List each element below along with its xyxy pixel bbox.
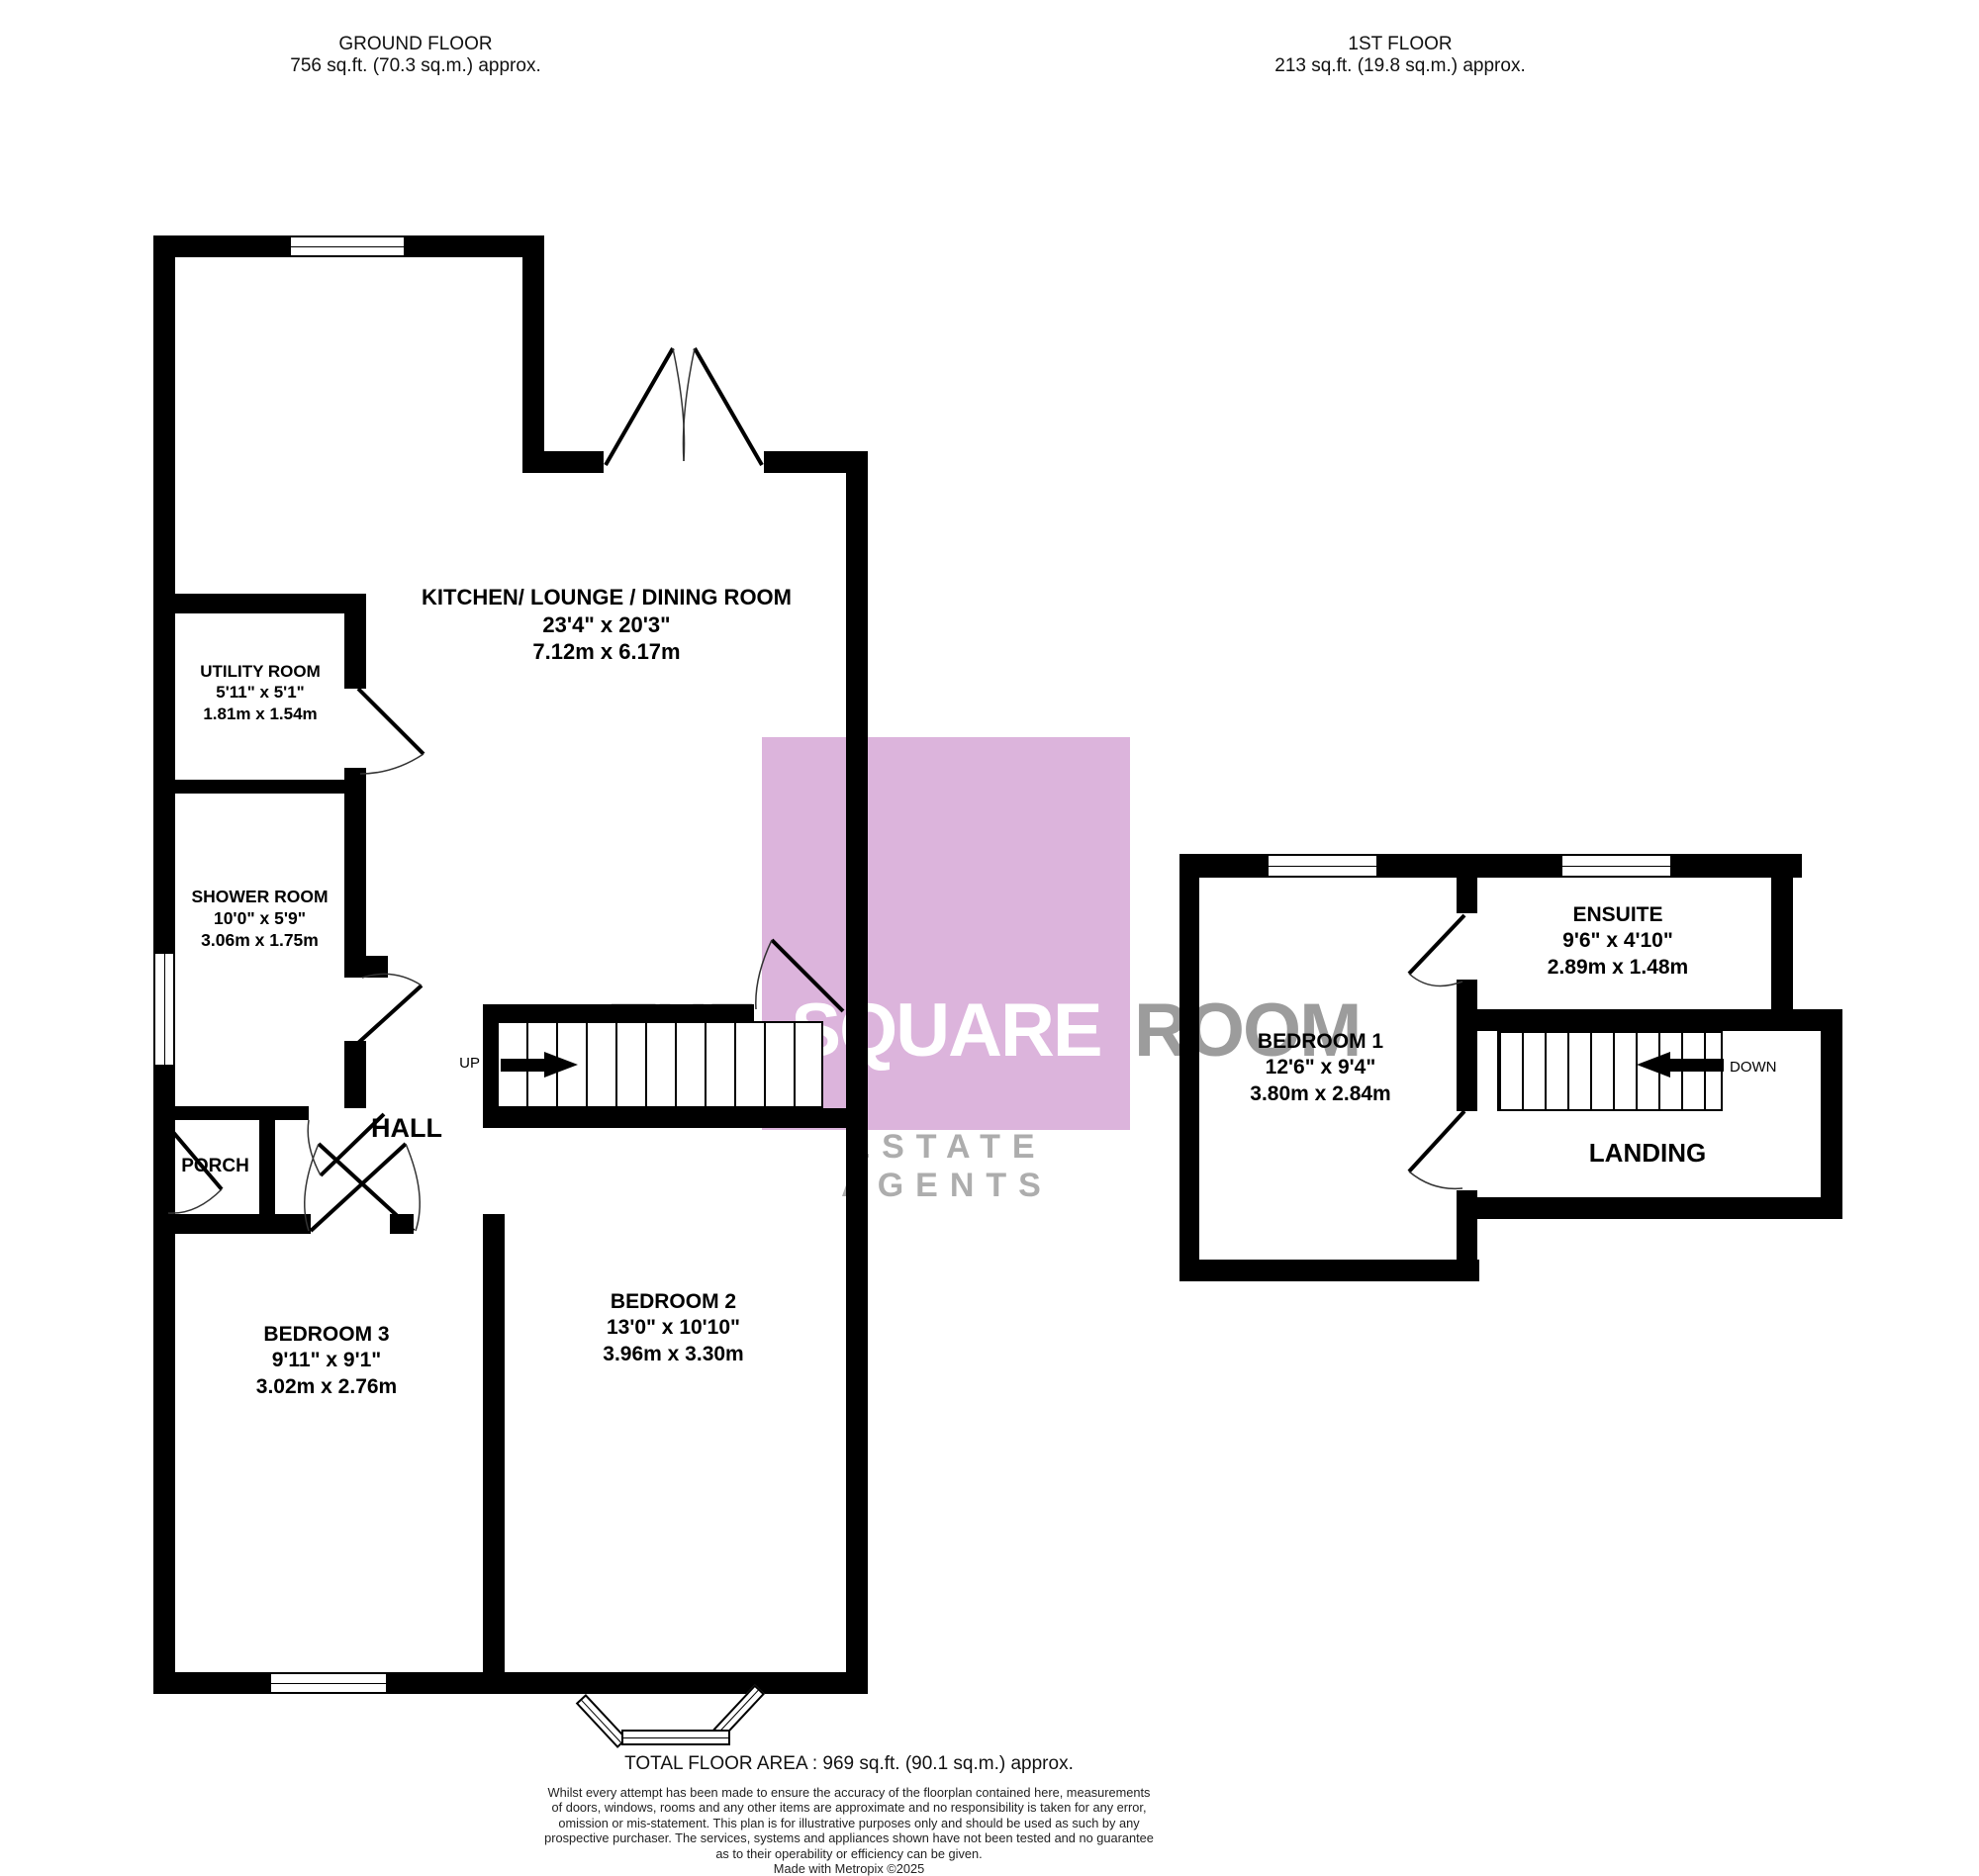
room-name: UTILITY ROOM bbox=[155, 661, 365, 682]
door-leaf bbox=[358, 985, 422, 1043]
room-name: KITCHEN/ LOUNGE / DINING ROOM bbox=[409, 584, 804, 611]
wall bbox=[483, 1214, 505, 1672]
room-label-bed3: BEDROOM 3 9'11" x 9'1" 3.02m x 2.76m bbox=[178, 1322, 475, 1400]
disclaimer-line: Whilst every attempt has been made to en… bbox=[404, 1785, 1294, 1800]
bay-window-front bbox=[621, 1730, 730, 1745]
wall bbox=[1457, 1009, 1842, 1031]
room-dims-imperial: 9'11" x 9'1" bbox=[178, 1348, 475, 1373]
wall bbox=[344, 956, 388, 978]
ground-floor-header: GROUND FLOOR 756 sq.ft. (70.3 sq.m.) app… bbox=[168, 34, 663, 77]
wall bbox=[483, 1004, 754, 1021]
wall bbox=[522, 235, 544, 473]
door-leaf bbox=[358, 689, 424, 754]
room-dims-metric: 2.89m x 1.48m bbox=[1464, 955, 1771, 981]
disclaimer-line: omission or mis-statement. This plan is … bbox=[404, 1816, 1294, 1830]
room-name: ENSUITE bbox=[1464, 902, 1771, 928]
room-label-kitchen: KITCHEN/ LOUNGE / DINING ROOM 23'4" x 20… bbox=[409, 584, 804, 666]
wall bbox=[522, 451, 604, 473]
door-arc bbox=[1409, 1172, 1462, 1188]
door-leaf bbox=[695, 348, 762, 465]
wall bbox=[1179, 1260, 1479, 1281]
first-floor-title: 1ST FLOOR bbox=[1153, 34, 1648, 55]
room-label-bed2: BEDROOM 2 13'0" x 10'10" 3.96m x 3.30m bbox=[522, 1289, 824, 1367]
room-dims-imperial: 5'11" x 5'1" bbox=[155, 682, 365, 703]
wall bbox=[153, 1214, 311, 1234]
wall bbox=[344, 1041, 366, 1108]
disclaimer: Whilst every attempt has been made to en… bbox=[404, 1785, 1294, 1876]
window bbox=[1267, 854, 1378, 878]
door-leaf bbox=[1409, 915, 1464, 974]
room-dims-imperial: 12'6" x 9'4" bbox=[1170, 1055, 1471, 1080]
room-name: SHOWER ROOM bbox=[153, 887, 366, 908]
disclaimer-line: as to their operability or efficiency ca… bbox=[404, 1846, 1294, 1861]
door-arc bbox=[360, 754, 424, 774]
room-name: BEDROOM 3 bbox=[178, 1322, 475, 1348]
room-dims-imperial: 10'0" x 5'9" bbox=[153, 908, 366, 930]
up-arrow-head bbox=[544, 1052, 578, 1078]
first-floor-area: 213 sq.ft. (19.8 sq.m.) approx. bbox=[1153, 55, 1648, 77]
stairs-down-label: DOWN bbox=[1730, 1059, 1809, 1076]
disclaimer-line: of doors, windows, rooms and any other i… bbox=[404, 1800, 1294, 1815]
room-name: BEDROOM 2 bbox=[522, 1289, 824, 1315]
room-dims-metric: 3.96m x 3.30m bbox=[522, 1342, 824, 1367]
wall bbox=[1457, 1197, 1842, 1219]
wall bbox=[1821, 1009, 1842, 1219]
watermark-tagline: ESTATE AGENTS bbox=[754, 1128, 1140, 1205]
door-arc bbox=[683, 348, 695, 461]
first-floor-header: 1ST FLOOR 213 sq.ft. (19.8 sq.m.) approx… bbox=[1153, 34, 1648, 77]
room-label-shower: SHOWER ROOM 10'0" x 5'9" 3.06m x 1.75m bbox=[153, 887, 366, 952]
room-dims-metric: 3.06m x 1.75m bbox=[153, 930, 366, 952]
up-arrow bbox=[501, 1059, 544, 1072]
ground-floor-area: 756 sq.ft. (70.3 sq.m.) approx. bbox=[168, 55, 663, 77]
wall bbox=[175, 594, 366, 613]
door-leaf bbox=[1409, 1111, 1464, 1172]
room-name: BEDROOM 1 bbox=[1170, 1029, 1471, 1055]
bay-window-left bbox=[576, 1694, 628, 1748]
room-label-hall: HALL bbox=[352, 1113, 461, 1144]
door-arc bbox=[308, 1120, 321, 1175]
window bbox=[1560, 854, 1672, 878]
window bbox=[153, 952, 175, 1067]
room-label-landing: LANDING bbox=[1563, 1138, 1732, 1169]
room-dims-imperial: 23'4" x 20'3" bbox=[409, 611, 804, 639]
room-dims-metric: 3.02m x 2.76m bbox=[178, 1374, 475, 1400]
door-arc bbox=[1409, 974, 1462, 986]
down-arrow-head bbox=[1637, 1052, 1670, 1078]
room-dims-imperial: 9'6" x 4'10" bbox=[1464, 928, 1771, 954]
disclaimer-line: prospective purchaser. The services, sys… bbox=[404, 1830, 1294, 1845]
floorplan-page: THE SQUARE ROOM ESTATE AGENTS GROUND FLO… bbox=[0, 0, 1979, 1876]
ground-floor-title: GROUND FLOOR bbox=[168, 34, 663, 55]
wall bbox=[153, 780, 366, 794]
credit-line: Made with Metropix ©2025 bbox=[404, 1861, 1294, 1876]
total-floor-area: TOTAL FLOOR AREA : 969 sq.ft. (90.1 sq.m… bbox=[453, 1753, 1245, 1775]
window bbox=[269, 1672, 388, 1694]
room-label-ensuite: ENSUITE 9'6" x 4'10" 2.89m x 1.48m bbox=[1464, 902, 1771, 981]
door-arc bbox=[673, 348, 685, 461]
door-arc bbox=[168, 1189, 222, 1213]
room-label-porch: PORCH bbox=[158, 1156, 272, 1177]
wall bbox=[846, 451, 868, 1694]
room-label-utility: UTILITY ROOM 5'11" x 5'1" 1.81m x 1.54m bbox=[155, 661, 365, 724]
room-dims-imperial: 13'0" x 10'10" bbox=[522, 1315, 824, 1341]
room-dims-metric: 7.12m x 6.17m bbox=[409, 638, 804, 666]
window bbox=[289, 235, 406, 257]
wall bbox=[483, 1108, 868, 1128]
room-dims-metric: 3.80m x 2.84m bbox=[1170, 1081, 1471, 1107]
stairs-up-label: UP bbox=[425, 1055, 480, 1072]
room-dims-metric: 1.81m x 1.54m bbox=[155, 703, 365, 724]
door-leaf bbox=[606, 348, 673, 465]
wall bbox=[390, 1214, 414, 1234]
down-arrow bbox=[1670, 1059, 1724, 1072]
wall bbox=[153, 1106, 309, 1120]
wall bbox=[1771, 854, 1793, 1031]
room-label-bed1: BEDROOM 1 12'6" x 9'4" 3.80m x 2.84m bbox=[1170, 1029, 1471, 1107]
